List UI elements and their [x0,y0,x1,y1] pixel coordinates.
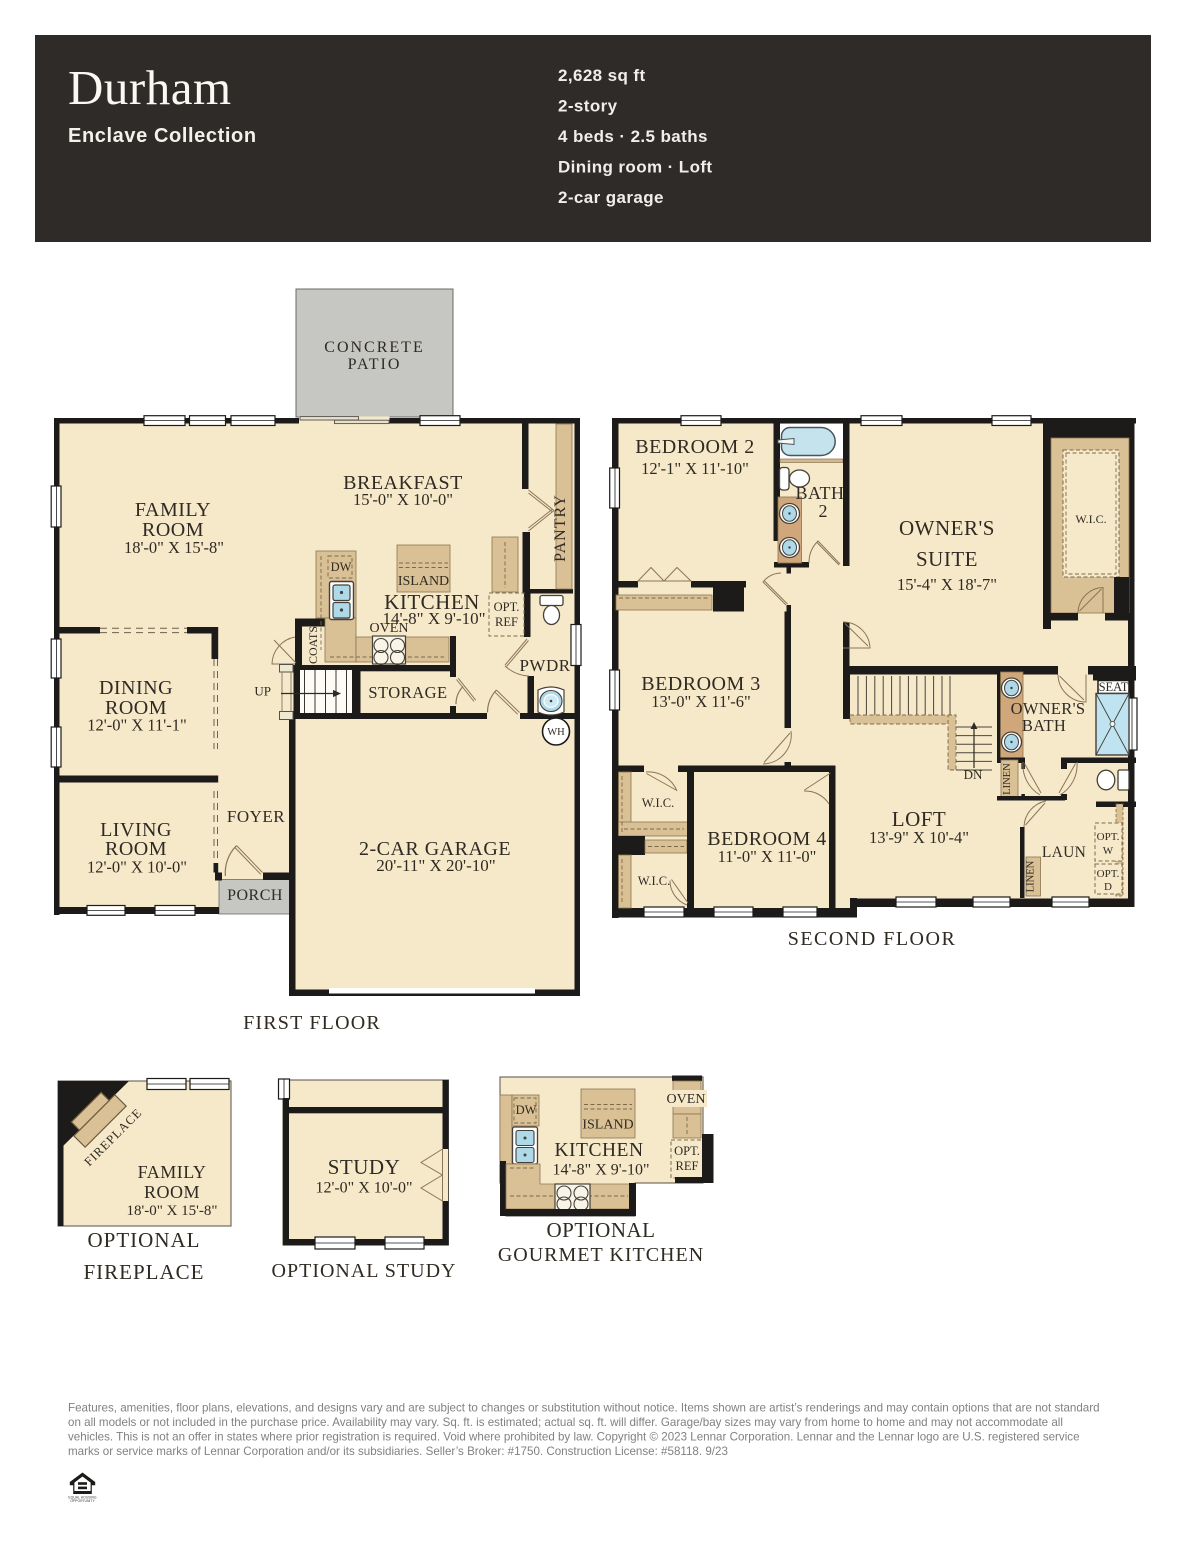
svg-text:SEAT: SEAT [1099,680,1129,694]
svg-text:OPTIONAL: OPTIONAL [88,1228,201,1252]
svg-text:Features, amenities, floor pla: Features, amenities, floor plans, elevat… [68,1402,1100,1415]
svg-text:4 beds · 2.5 baths: 4 beds · 2.5 baths [558,127,708,146]
svg-text:FAMILY: FAMILY [135,499,211,521]
svg-text:DINING: DINING [99,677,173,699]
svg-text:PORCH: PORCH [227,887,283,904]
svg-text:PANTRY: PANTRY [552,494,569,562]
svg-text:ISLAND: ISLAND [398,574,449,589]
svg-text:BATH: BATH [1022,716,1066,735]
svg-text:11'-0" X 11'-0": 11'-0" X 11'-0" [718,847,817,866]
svg-text:GOURMET KITCHEN: GOURMET KITCHEN [498,1244,704,1266]
svg-text:OVEN: OVEN [667,1092,706,1107]
svg-text:2-story: 2-story [558,97,618,116]
svg-text:20'-11" X 20'-10": 20'-11" X 20'-10" [376,856,495,875]
svg-text:OPTIONAL STUDY: OPTIONAL STUDY [272,1260,457,1282]
svg-text:W: W [1103,845,1114,857]
svg-text:FIREPLACE: FIREPLACE [83,1260,204,1284]
svg-text:STUDY: STUDY [328,1155,401,1179]
svg-text:PATIO: PATIO [348,356,402,373]
svg-text:KITCHEN: KITCHEN [554,1140,643,1161]
svg-text:D: D [1104,881,1112,893]
svg-text:OPT.: OPT. [1097,831,1120,843]
svg-text:12'-0" X 11'-1": 12'-0" X 11'-1" [87,716,186,735]
svg-text:STORAGE: STORAGE [368,683,447,702]
svg-text:marks or service marks of Lenn: marks or service marks of Lennar Corpora… [68,1445,728,1458]
svg-text:SECOND FLOOR: SECOND FLOOR [788,928,957,950]
svg-text:W.I.C.: W.I.C. [638,874,671,888]
svg-text:UP: UP [254,684,271,699]
svg-text:W.I.C.: W.I.C. [642,796,675,810]
svg-text:2,628 sq ft: 2,628 sq ft [558,66,646,85]
svg-text:LINEN: LINEN [1026,860,1037,892]
svg-text:14'-8" X 9'-10": 14'-8" X 9'-10" [382,609,485,628]
svg-text:Enclave Collection: Enclave Collection [68,125,257,147]
svg-text:13'-0" X 11'-6": 13'-0" X 11'-6" [651,692,750,711]
svg-text:15'-0" X 10'-0": 15'-0" X 10'-0" [353,490,453,509]
svg-text:OPTIONAL: OPTIONAL [547,1218,656,1242]
svg-text:13'-9" X 10'-4": 13'-9" X 10'-4" [869,828,969,847]
svg-text:18'-0" X 15'-8": 18'-0" X 15'-8" [127,1203,218,1219]
svg-text:FOYER: FOYER [227,807,285,826]
svg-text:15'-4" X 18'-7": 15'-4" X 18'-7" [897,575,997,594]
svg-text:LAUN: LAUN [1042,844,1086,861]
svg-text:REF: REF [676,1159,699,1173]
svg-text:BEDROOM 2: BEDROOM 2 [635,436,755,458]
svg-text:OPPORTUNITY: OPPORTUNITY [70,1499,95,1503]
svg-text:W.I.C.: W.I.C. [1075,512,1106,526]
svg-text:12'-0" X 10'-0": 12'-0" X 10'-0" [315,1180,412,1197]
svg-text:Dining room · Loft: Dining room · Loft [558,158,713,177]
svg-text:14'-8" X 9'-10": 14'-8" X 9'-10" [552,1162,649,1179]
svg-text:on all models or not included: on all models or not included in the pur… [68,1416,1063,1429]
svg-text:COATS: COATS [306,626,320,664]
svg-text:FAMILY: FAMILY [138,1162,207,1182]
svg-text:2: 2 [819,501,828,521]
svg-text:OWNER'S: OWNER'S [899,516,995,540]
svg-text:DW: DW [331,560,352,574]
svg-text:vehicles. This is not an offer: vehicles. This is not an offer in states… [68,1431,1080,1444]
svg-text:CONCRETE: CONCRETE [324,339,424,356]
svg-text:WH: WH [547,727,565,738]
svg-text:ISLAND: ISLAND [582,1118,633,1133]
svg-text:OPT.: OPT. [494,600,520,614]
svg-text:REF: REF [495,615,518,629]
svg-text:PWDR: PWDR [519,656,570,675]
svg-text:BATH: BATH [795,483,844,503]
svg-text:DN: DN [964,767,983,782]
svg-text:FIRST FLOOR: FIRST FLOOR [243,1012,381,1034]
svg-text:2-car garage: 2-car garage [558,188,664,207]
svg-text:18'-0" X 15'-8": 18'-0" X 15'-8" [124,538,224,557]
svg-text:12'-1" X 11'-10": 12'-1" X 11'-10" [641,459,749,478]
svg-text:12'-0" X 10'-0": 12'-0" X 10'-0" [87,858,187,877]
svg-text:OPT.: OPT. [1097,868,1120,880]
svg-text:DW: DW [516,1103,537,1117]
svg-text:OPT.: OPT. [674,1144,700,1158]
svg-text:ROOM: ROOM [144,1182,200,1202]
svg-text:Durham: Durham [68,60,232,115]
svg-text:LINEN: LINEN [1002,763,1013,795]
svg-text:SUITE: SUITE [916,547,978,571]
